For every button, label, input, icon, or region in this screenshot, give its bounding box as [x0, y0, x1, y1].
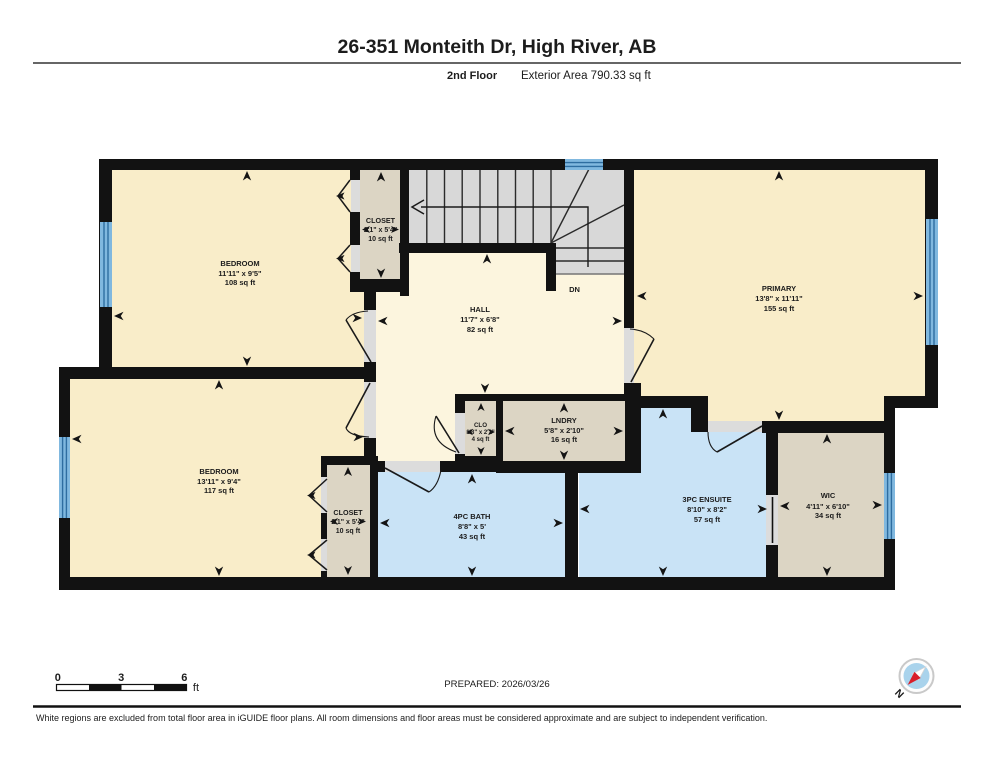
- svg-text:108 sq ft: 108 sq ft: [225, 278, 256, 287]
- svg-text:8'8" x 5': 8'8" x 5': [458, 522, 486, 531]
- svg-text:CLOSET: CLOSET: [366, 216, 396, 225]
- svg-text:WIC: WIC: [821, 491, 836, 500]
- svg-text:11'11" x 9'5": 11'11" x 9'5": [218, 269, 262, 278]
- svg-text:5'8" x 2'10": 5'8" x 2'10": [544, 426, 584, 435]
- svg-text:13'11" x 9'4": 13'11" x 9'4": [197, 477, 241, 486]
- svg-text:N: N: [892, 687, 906, 701]
- svg-text:57 sq ft: 57 sq ft: [694, 515, 721, 524]
- svg-text:43 sq ft: 43 sq ft: [459, 532, 486, 541]
- svg-text:26-351 Monteith Dr, High River: 26-351 Monteith Dr, High River, AB: [338, 36, 657, 58]
- svg-text:2nd Floor: 2nd Floor: [447, 70, 498, 82]
- svg-text:0: 0: [55, 672, 61, 684]
- svg-text:CLO: CLO: [474, 422, 487, 429]
- svg-text:10 sq ft: 10 sq ft: [336, 528, 361, 535]
- svg-text:BEDROOM: BEDROOM: [199, 467, 238, 476]
- svg-text:10 sq ft: 10 sq ft: [368, 236, 393, 243]
- svg-text:PREPARED: 2026/03/26: PREPARED: 2026/03/26: [444, 679, 549, 690]
- svg-text:PRIMARY: PRIMARY: [762, 284, 796, 293]
- svg-text:LNDRY: LNDRY: [551, 416, 577, 425]
- svg-text:DN: DN: [569, 285, 580, 294]
- svg-text:ft: ft: [193, 682, 199, 694]
- svg-text:4'11" x 6'10": 4'11" x 6'10": [806, 502, 850, 511]
- svg-text:3PC ENSUITE: 3PC ENSUITE: [682, 495, 731, 504]
- svg-text:4PC BATH: 4PC BATH: [454, 512, 491, 521]
- svg-text:82 sq ft: 82 sq ft: [467, 325, 494, 334]
- svg-text:155 sq ft: 155 sq ft: [764, 304, 795, 313]
- svg-text:3: 3: [118, 672, 124, 684]
- svg-text:13'8" x 11'11": 13'8" x 11'11": [755, 294, 803, 303]
- svg-text:Exterior Area 790.33 sq ft: Exterior Area 790.33 sq ft: [521, 70, 652, 82]
- svg-text:8'10" x 8'2": 8'10" x 8'2": [687, 505, 727, 514]
- svg-text:BEDROOM: BEDROOM: [220, 259, 259, 268]
- svg-text:4 sq ft: 4 sq ft: [472, 437, 490, 443]
- svg-text:34 sq ft: 34 sq ft: [815, 511, 842, 520]
- svg-text:11'7" x 6'8": 11'7" x 6'8": [460, 315, 500, 324]
- svg-text:White regions are excluded fro: White regions are excluded from total fl…: [36, 713, 767, 723]
- svg-text:CLOSET: CLOSET: [333, 508, 363, 517]
- svg-text:HALL: HALL: [470, 305, 490, 314]
- svg-text:16 sq ft: 16 sq ft: [551, 435, 578, 444]
- svg-text:2'1" x 5'4": 2'1" x 5'4": [364, 227, 397, 234]
- svg-text:6: 6: [181, 672, 187, 684]
- svg-text:117 sq ft: 117 sq ft: [204, 486, 235, 495]
